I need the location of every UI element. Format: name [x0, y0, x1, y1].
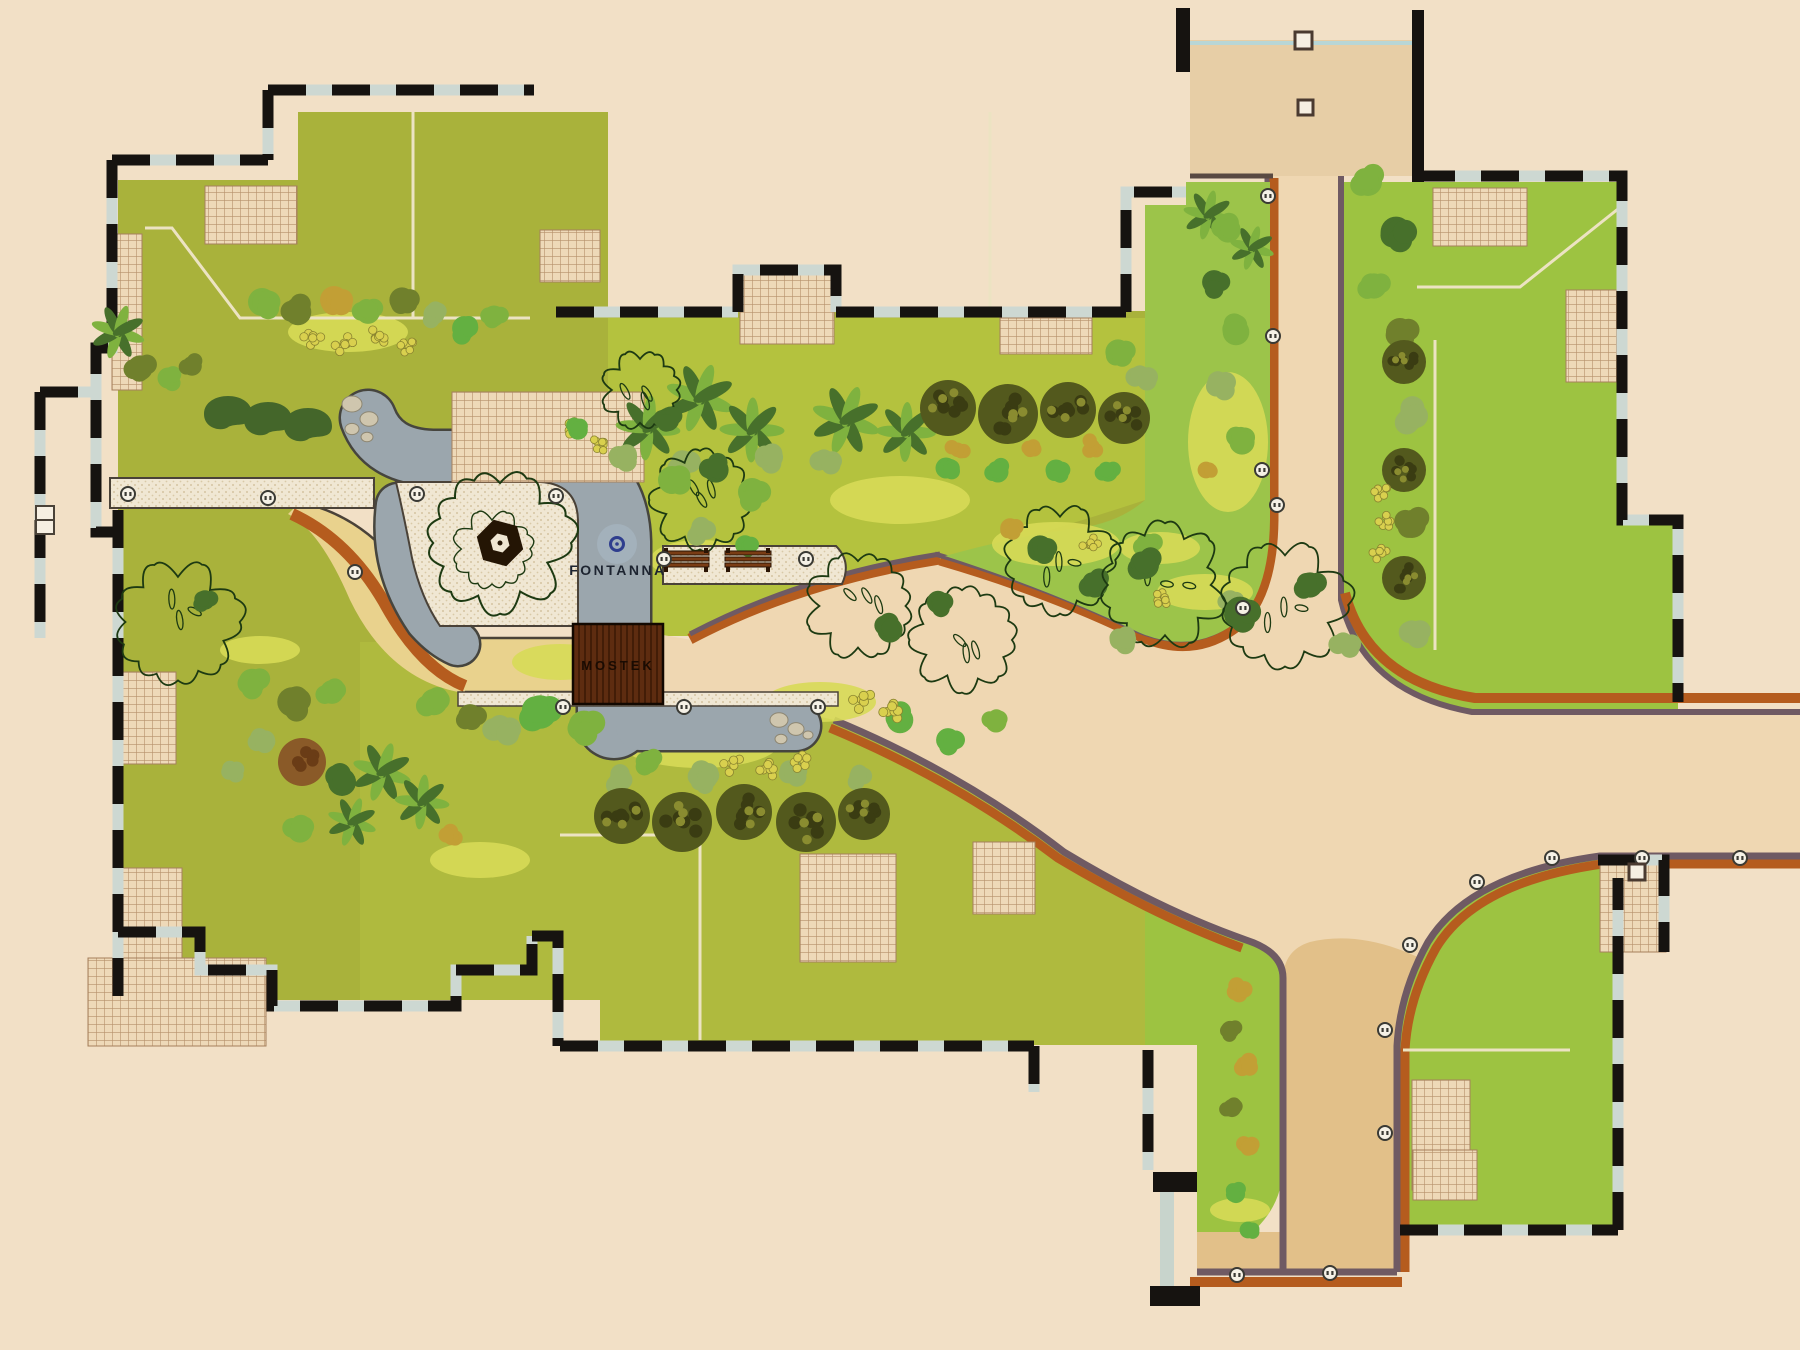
tree-blob-icon	[1393, 220, 1417, 244]
tree-blob-icon	[1356, 168, 1378, 190]
tree-highlight	[746, 819, 755, 828]
yellow-shrub-icon	[1383, 511, 1391, 519]
tree-blob-icon	[1222, 1028, 1236, 1042]
hatch-paving	[205, 186, 297, 244]
sage-shrub-icon	[1404, 404, 1428, 428]
yellow-shrub-icon	[1375, 518, 1383, 526]
tree-highlight	[949, 388, 958, 397]
yellow-shrub-icon	[729, 756, 737, 764]
hatch-paving	[540, 230, 600, 282]
tree-highlight	[756, 807, 765, 816]
tree-blob-icon	[1398, 516, 1420, 538]
tree-blob-icon	[1232, 431, 1252, 451]
sage-shrub-icon	[821, 455, 840, 474]
tree-speckle	[1406, 472, 1416, 482]
yellow-shrub-icon	[756, 766, 764, 774]
yellow-shrub-icon	[764, 760, 772, 768]
lamp-icon	[348, 565, 362, 579]
hatch-paving	[740, 272, 834, 344]
yellow-shrub-icon	[794, 754, 802, 762]
tree-blob-icon	[129, 362, 149, 382]
tree-blob-icon	[946, 730, 965, 749]
tree-blob-icon	[522, 696, 548, 722]
yellow-shrub-icon	[369, 326, 377, 334]
tree-highlight	[860, 808, 868, 816]
hatch-paving	[973, 842, 1035, 914]
lamp-icon	[1261, 189, 1275, 203]
tree-highlight	[802, 835, 812, 845]
tree-highlight	[846, 804, 854, 812]
tree-speckle	[1404, 562, 1414, 572]
tree-blob-icon	[1297, 573, 1317, 593]
tree-highlight	[1392, 356, 1399, 363]
tree-blob-icon	[1225, 321, 1246, 342]
hatch-paving	[1433, 188, 1527, 246]
tree-highlight	[1047, 406, 1056, 415]
tree-speckle	[689, 824, 702, 837]
gold-shrub-icon	[1241, 1059, 1258, 1076]
tree-highlight	[1404, 574, 1411, 581]
tree-highlight	[1400, 475, 1407, 482]
hatch-paving	[452, 392, 644, 482]
tree-highlight	[1394, 468, 1401, 475]
tree-highlight	[1008, 409, 1018, 419]
tree-speckle	[1131, 419, 1142, 430]
sage-shrub-icon	[226, 764, 242, 780]
tree-highlight	[928, 404, 937, 413]
tree-speckle	[1009, 393, 1022, 406]
tree-highlight	[861, 800, 869, 808]
tree-blob-icon	[1112, 347, 1132, 367]
tree-blob-icon	[944, 463, 961, 480]
bridge: MOSTEK	[573, 624, 663, 704]
lawn-patch	[430, 842, 530, 878]
tree-blob-icon	[1037, 538, 1057, 558]
lamp-icon	[657, 552, 671, 566]
tree-highlight	[1077, 398, 1086, 407]
lamp-icon	[1733, 851, 1747, 865]
shrub-speckle	[307, 755, 319, 767]
tree-blob-icon	[398, 294, 418, 314]
tree-blob-icon	[989, 462, 1006, 479]
tree-highlight	[1411, 572, 1418, 579]
tree-speckle	[659, 814, 672, 827]
tree-highlight	[1113, 401, 1121, 409]
lamp-icon	[261, 491, 275, 505]
rock-icon	[361, 432, 373, 442]
tree-highlight	[813, 813, 823, 823]
lawn-patch	[830, 476, 970, 524]
tree-speckle	[793, 803, 806, 816]
tree-blob-icon	[708, 459, 728, 479]
yellow-shrub-icon	[1382, 484, 1390, 492]
tree-speckle	[937, 401, 949, 413]
tree-speckle	[811, 825, 824, 838]
tree-blob-icon	[285, 686, 308, 709]
tree-blob-icon	[1246, 1222, 1259, 1235]
rock-icon	[788, 723, 804, 736]
tree-blob-icon	[1134, 551, 1156, 573]
yellow-shrub-icon	[1380, 492, 1388, 500]
tree-blob-icon	[1361, 273, 1381, 293]
yellow-shrub-icon	[336, 347, 344, 355]
landscape-site-plan: MOSTEK FONTANNA	[0, 0, 1800, 1350]
gold-shrub-icon	[1240, 1140, 1255, 1155]
tree-blob-icon	[332, 769, 354, 791]
yellow-shrub-icon	[590, 436, 598, 444]
tree-highlight	[618, 820, 627, 829]
rock-icon	[360, 412, 378, 426]
south-gate-wall	[1150, 1286, 1200, 1306]
sage-shrub-icon	[613, 770, 632, 789]
gold-shrub-icon	[1021, 441, 1035, 455]
tree-blob-icon	[1226, 1187, 1240, 1201]
yellow-shrub-icon	[888, 702, 897, 711]
sage-shrub-icon	[1402, 621, 1424, 643]
lamp-icon	[1266, 329, 1280, 343]
lamp-icon	[410, 487, 424, 501]
sage-shrub-icon	[1208, 371, 1228, 391]
table-icon	[36, 506, 54, 534]
tree-speckle	[734, 818, 746, 830]
planter-square-icon	[1295, 32, 1312, 49]
yellow-shrub-icon	[309, 334, 317, 342]
planter-square-icon	[1298, 100, 1313, 115]
lamp-icon	[677, 700, 691, 714]
tree-blob-icon	[988, 713, 1005, 730]
rock-icon	[803, 731, 813, 739]
tree-highlight	[1061, 413, 1070, 422]
tree-blob-icon	[165, 366, 182, 383]
lamp-icon	[1403, 938, 1417, 952]
yellow-shrub-icon	[1376, 547, 1384, 555]
sage-shrub-icon	[763, 447, 783, 467]
tree-blob-icon	[1205, 465, 1218, 478]
tree-blob-icon	[257, 297, 279, 319]
tree-blob-icon	[1054, 462, 1071, 479]
rock-icon	[775, 734, 787, 744]
sage-shrub-icon	[849, 768, 866, 785]
lamp-icon	[811, 700, 825, 714]
sage-shrub-icon	[617, 444, 637, 464]
planter-square-icon	[1629, 864, 1645, 880]
tree-highlight	[1119, 414, 1127, 422]
sage-shrub-icon	[697, 770, 714, 787]
south-gate-wall	[1153, 1172, 1197, 1192]
tree-speckle	[1061, 402, 1073, 414]
tree-highlight	[1018, 407, 1028, 417]
rock-icon	[345, 423, 359, 434]
tree-highlight	[744, 806, 753, 815]
tree-highlight	[1123, 406, 1131, 414]
yellow-shrub-icon	[879, 708, 888, 717]
tree-blob-icon	[194, 591, 209, 606]
tree-blob-icon	[744, 537, 759, 552]
hatch-paving	[1566, 290, 1618, 382]
tree-highlight	[1401, 357, 1408, 364]
lamp-icon	[1270, 498, 1284, 512]
yellow-shrub-icon	[720, 759, 728, 767]
yellow-shrub-icon	[849, 695, 858, 704]
lamp-icon	[1545, 851, 1559, 865]
tree-blob-icon	[1084, 573, 1104, 593]
lamp-icon	[121, 487, 135, 501]
tree-blob-icon	[242, 678, 263, 699]
tree-blob-icon	[427, 301, 444, 318]
tree-highlight	[678, 808, 688, 818]
yellow-shrub-icon	[801, 761, 809, 769]
tree-blob-icon	[290, 819, 310, 839]
tree-speckle	[1409, 356, 1419, 366]
tree-highlight	[938, 394, 947, 403]
yellow-shrub-icon	[793, 764, 801, 772]
sage-shrub-icon	[691, 517, 710, 536]
lamp-icon	[1323, 1266, 1337, 1280]
sage-shrub-icon	[1137, 371, 1156, 390]
lawn-patch	[220, 636, 300, 664]
south-road-gate-branch	[1197, 1232, 1283, 1272]
hatch-paving	[1413, 1150, 1477, 1200]
tree-blob-icon	[668, 465, 690, 487]
tree-blob-icon	[460, 318, 479, 337]
lamp-icon	[1236, 601, 1250, 615]
tree-blob-icon	[740, 490, 762, 512]
hatch-paving	[800, 854, 896, 962]
tree-blob-icon	[286, 299, 307, 320]
gold-shrub-icon	[1236, 981, 1253, 998]
tree-highlight	[799, 818, 809, 828]
tree-blob-icon	[1005, 525, 1020, 540]
lamp-icon	[1230, 1268, 1244, 1282]
yellow-shrub-icon	[316, 333, 324, 341]
sage-shrub-icon	[496, 723, 519, 746]
hatch-paving	[122, 868, 182, 964]
tree-blob-icon	[429, 690, 450, 711]
tree-highlight	[602, 818, 611, 827]
tree-blob-icon	[1098, 462, 1113, 477]
tree-blob-icon	[570, 422, 585, 437]
tree-speckle	[1394, 584, 1404, 594]
tree-speckle	[993, 422, 1006, 435]
tree-speckle	[868, 803, 879, 814]
yellow-shrub-icon	[341, 340, 349, 348]
yellow-shrub-icon	[1153, 590, 1161, 598]
yellow-shrub-icon	[1371, 488, 1379, 496]
yellow-shrub-icon	[803, 754, 811, 762]
lamp-icon	[1255, 463, 1269, 477]
lamp-icon	[1470, 875, 1484, 889]
tree-blob-icon	[573, 722, 597, 746]
hatch-paving	[1000, 318, 1092, 354]
tree-speckle	[615, 809, 627, 821]
yellow-shrub-icon	[1079, 542, 1087, 550]
rock-icon	[342, 396, 362, 412]
tree-blob-icon	[1220, 219, 1240, 239]
yellow-shrub-icon	[1090, 543, 1098, 551]
tree-speckle	[689, 808, 702, 821]
yellow-shrub-icon	[300, 333, 308, 341]
yellow-shrub-icon	[859, 691, 868, 700]
yellow-shrub-icon	[1162, 596, 1170, 604]
sage-shrub-icon	[1117, 630, 1136, 649]
tree-speckle	[1130, 406, 1141, 417]
south-gate-passage	[1160, 1192, 1174, 1286]
sage-shrub-icon	[256, 735, 274, 753]
yellow-shrub-icon	[397, 342, 405, 350]
tree-blob-icon	[456, 711, 475, 730]
tree-highlight	[676, 817, 686, 827]
bridge-label: MOSTEK	[581, 658, 655, 673]
lamp-icon	[1378, 1023, 1392, 1037]
fountain-label: FONTANNA	[569, 562, 667, 578]
tree-blob-icon	[932, 600, 950, 618]
tree-speckle	[956, 399, 968, 411]
tree-blob-icon	[882, 618, 902, 638]
sage-shrub-icon	[1340, 639, 1359, 658]
yellow-shrub-icon	[599, 438, 607, 446]
gazebo-center-dot	[498, 541, 503, 546]
tree-blob-icon	[640, 751, 658, 769]
tree-highlight	[632, 806, 641, 815]
lamp-icon	[1378, 1126, 1392, 1140]
gold-shrub-icon	[439, 827, 454, 842]
yellow-shrub-icon	[1373, 555, 1381, 563]
lamp-icon	[799, 552, 813, 566]
lamp-icon	[549, 489, 563, 503]
tree-blob-icon	[327, 681, 346, 700]
shrub-speckle	[295, 760, 307, 772]
tree-blob-icon	[357, 299, 376, 318]
tree-blob-icon	[331, 289, 353, 311]
yellow-shrub-icon	[599, 446, 607, 454]
tree-blob-icon	[1205, 280, 1224, 299]
lamp-icon	[556, 700, 570, 714]
tree-highlight	[1402, 466, 1409, 473]
tree-blob-icon	[657, 414, 675, 432]
tree-speckle	[1104, 411, 1115, 422]
tree-blob-icon	[480, 307, 497, 324]
gold-shrub-icon	[1083, 433, 1097, 447]
tree-blob-icon	[186, 357, 201, 372]
yellow-shrub-icon	[348, 338, 356, 346]
gold-shrub-icon	[945, 440, 959, 454]
yellow-shrub-icon	[376, 331, 384, 339]
west-walkway	[110, 478, 374, 508]
tree-speckle	[1394, 455, 1404, 465]
rock-icon	[770, 713, 788, 727]
tree-blob-icon	[1228, 1099, 1242, 1113]
yellow-shrub-icon	[406, 346, 414, 354]
yellow-shrub-icon	[1154, 600, 1162, 608]
yellow-shrub-icon	[408, 338, 416, 346]
